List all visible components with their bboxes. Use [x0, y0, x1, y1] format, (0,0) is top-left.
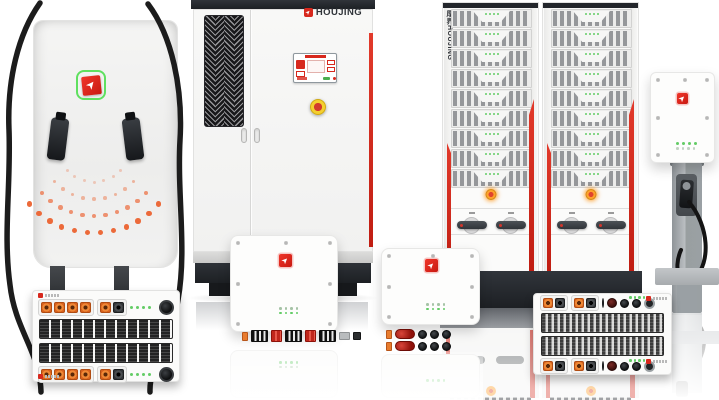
status-led	[634, 296, 637, 299]
indicator-button	[585, 189, 596, 200]
status-led	[285, 312, 288, 315]
module-led	[489, 13, 491, 15]
module-led	[593, 133, 595, 135]
rectifier-module-stack	[32, 290, 180, 382]
status-leds	[130, 373, 151, 376]
status-led	[296, 307, 299, 310]
mini-black-connector	[353, 332, 361, 340]
screw	[236, 322, 240, 326]
rack-module	[451, 49, 532, 68]
module-leds	[485, 13, 499, 22]
screw	[470, 315, 474, 319]
module-led	[597, 13, 599, 15]
module-led	[585, 133, 587, 135]
module-led	[497, 113, 499, 115]
aux-group	[97, 299, 127, 316]
module-led	[493, 73, 495, 75]
module-led	[493, 113, 495, 115]
big-red-connector	[395, 341, 415, 351]
status-led	[290, 312, 293, 315]
module-led	[497, 93, 499, 95]
input-pair	[571, 358, 599, 374]
terminal-connectors	[242, 330, 361, 342]
module-led	[489, 153, 491, 155]
module-led	[485, 13, 487, 15]
module-led	[585, 33, 587, 35]
round-black-connector	[430, 342, 439, 351]
connector-row	[534, 357, 671, 375]
module-led	[593, 173, 595, 175]
module-led	[493, 33, 495, 35]
module-led	[485, 113, 487, 115]
status-led	[634, 359, 637, 362]
status-led	[279, 307, 282, 310]
module-leds	[585, 73, 599, 82]
module-led	[585, 53, 587, 55]
pedestal-lower	[677, 285, 697, 313]
status-led	[136, 306, 139, 309]
screw	[470, 285, 474, 289]
brand-wordmark: ➤ HOUJING	[304, 7, 362, 18]
module-led	[597, 53, 599, 55]
module-led	[585, 173, 587, 175]
output-connector	[159, 300, 174, 315]
status-led	[682, 147, 685, 150]
module-led	[497, 33, 499, 35]
rack-module	[551, 169, 632, 188]
round-black-connector	[418, 330, 427, 339]
module-led	[485, 173, 487, 175]
module-led	[497, 73, 499, 75]
stripe-connector	[319, 330, 336, 342]
module-leds	[485, 33, 499, 42]
module-led	[485, 133, 487, 135]
brand-strip	[38, 374, 59, 379]
module-leds	[485, 113, 499, 122]
indicator-button	[485, 189, 496, 200]
display-dot	[333, 77, 336, 80]
module-led	[589, 33, 591, 35]
rack-top-band	[543, 3, 638, 8]
ventilation-grille	[541, 313, 664, 333]
screw	[431, 254, 435, 258]
status-led	[694, 142, 697, 145]
module-led	[489, 173, 491, 175]
rotary-knob	[602, 298, 604, 308]
rack-module	[451, 169, 532, 188]
brand-logo: ➤	[677, 93, 688, 104]
module-led	[585, 93, 587, 95]
round-black-connector	[620, 299, 629, 308]
screw	[705, 78, 709, 82]
module-led	[593, 33, 595, 35]
round-darkred-connector	[607, 361, 617, 371]
module-led	[497, 13, 499, 15]
module-stack	[551, 9, 632, 188]
plug-row	[386, 329, 451, 339]
status-led	[130, 306, 133, 309]
status-led	[426, 303, 429, 306]
module-led	[493, 93, 495, 95]
screw	[284, 241, 288, 245]
module-leds	[585, 13, 599, 22]
round-black-connector	[442, 342, 451, 351]
module-led	[593, 113, 595, 115]
module-leds	[585, 133, 599, 142]
reflection-fade	[228, 346, 342, 400]
mini-gray-connector	[339, 332, 350, 340]
rack-module	[451, 69, 532, 88]
dc-input-group	[38, 299, 94, 316]
status-led	[437, 303, 440, 306]
module-led	[589, 13, 591, 15]
input-pair	[540, 358, 568, 374]
door-handle	[254, 128, 260, 143]
screw	[387, 315, 391, 319]
black-connector	[586, 298, 596, 308]
red-accent-stripe	[369, 33, 373, 247]
status-led	[130, 373, 133, 376]
rack-module	[451, 29, 532, 48]
screw	[705, 116, 709, 120]
divider	[449, 208, 532, 209]
red-connector	[305, 330, 316, 342]
status-led	[443, 303, 446, 306]
module-leds	[485, 133, 499, 142]
status-led	[676, 147, 679, 150]
round-black-connector	[430, 330, 439, 339]
display-tile	[327, 60, 335, 65]
status-led	[432, 303, 435, 306]
battery-rack-cabinet-1: 厚界HOUJING	[442, 2, 539, 398]
mini-orange-connector	[386, 342, 392, 351]
stripe-connector	[285, 330, 302, 342]
orange-connector	[41, 302, 52, 313]
brand-strip	[646, 296, 667, 301]
status-led	[296, 312, 299, 315]
screw	[328, 241, 332, 245]
screw	[656, 78, 660, 82]
big-red-connector	[395, 329, 415, 339]
module-leds	[485, 153, 499, 162]
module-led	[493, 53, 495, 55]
orange-connector	[80, 302, 91, 313]
dc-breaker-switch	[557, 214, 587, 236]
module-led	[593, 13, 595, 15]
brand-strip	[646, 359, 667, 364]
ventilation-grille	[204, 15, 244, 127]
rack-module	[551, 69, 632, 88]
status-leds	[629, 296, 645, 299]
screw	[683, 78, 687, 82]
status-led	[148, 373, 151, 376]
rack-module	[551, 9, 632, 28]
round-black-connector	[620, 362, 629, 371]
black-connector	[586, 361, 596, 371]
brand-name: HOUJING	[316, 7, 362, 18]
emergency-stop-button	[310, 99, 326, 115]
status-led	[142, 306, 145, 309]
module-led	[585, 73, 587, 75]
module-led	[593, 73, 595, 75]
status-leds	[279, 307, 298, 314]
black-connector	[113, 302, 124, 313]
rack-module	[551, 129, 632, 148]
module-led	[489, 93, 491, 95]
hmi-display	[293, 53, 337, 83]
plug-connectors	[386, 329, 451, 351]
status-leds	[629, 359, 645, 362]
orange-connector	[543, 361, 553, 371]
module-led	[493, 173, 495, 175]
rack-top-band	[443, 3, 538, 8]
output-connector	[159, 367, 174, 382]
ventilation-grille	[39, 343, 173, 363]
orange-connector	[574, 298, 584, 308]
status-led	[432, 308, 435, 311]
module-led	[593, 93, 595, 95]
module-leds	[485, 73, 499, 82]
module-leds	[585, 173, 599, 182]
module-led	[489, 133, 491, 135]
black-connector	[113, 369, 124, 380]
screw	[236, 282, 240, 286]
red-accent-stripe	[629, 99, 634, 271]
mini-orange-connector	[242, 332, 248, 341]
screw	[236, 241, 240, 245]
module-led	[589, 153, 591, 155]
module-leds	[485, 173, 499, 182]
status-led	[443, 308, 446, 311]
black-connector	[555, 298, 565, 308]
module-led	[485, 153, 487, 155]
mini-orange-connector	[386, 330, 392, 339]
orange-connector	[100, 369, 111, 380]
pedestal-arms	[655, 268, 719, 285]
round-darkred-connector	[607, 298, 617, 308]
module-led	[497, 53, 499, 55]
module-led	[493, 133, 495, 135]
module-leds	[485, 93, 499, 102]
rack-module	[451, 149, 532, 168]
round-black-connector	[632, 362, 641, 371]
inverter-panel-1: ➤	[230, 235, 338, 332]
module-stack	[451, 9, 532, 188]
status-led	[687, 147, 690, 150]
rack-module	[451, 9, 532, 28]
module-led	[585, 113, 587, 115]
brand-logo: ➤	[425, 259, 438, 272]
rack-module	[551, 149, 632, 168]
rotary-knob	[602, 361, 604, 371]
rack-module	[451, 89, 532, 108]
orange-connector	[67, 369, 78, 380]
door-seam	[250, 10, 251, 251]
rack-module	[551, 109, 632, 128]
module-led	[489, 53, 491, 55]
status-led	[629, 359, 632, 362]
status-led	[290, 307, 293, 310]
module-leds	[585, 93, 599, 102]
round-black-connector	[632, 299, 641, 308]
orange-connector	[67, 302, 78, 313]
input-pair	[571, 295, 599, 311]
product-showcase: ➤ ➤ HOUJING	[0, 0, 719, 400]
aux-group	[97, 366, 127, 383]
brand-logo: ➤	[279, 254, 292, 267]
screw	[328, 322, 332, 326]
ventilation-grille	[541, 336, 664, 356]
display-header	[305, 55, 326, 58]
module-led	[589, 113, 591, 115]
module-led	[489, 113, 491, 115]
input-pair	[540, 295, 568, 311]
module-leds	[585, 33, 599, 42]
rack-module	[551, 89, 632, 108]
status-led	[638, 296, 641, 299]
status-led	[285, 307, 288, 310]
orange-connector	[100, 302, 111, 313]
module-led	[589, 73, 591, 75]
module-led	[485, 93, 487, 95]
module-led	[497, 173, 499, 175]
red-accent-stripe	[529, 99, 534, 271]
orange-connector	[80, 369, 91, 380]
rack-module	[451, 109, 532, 128]
module-led	[593, 153, 595, 155]
status-led	[693, 147, 696, 150]
status-led	[148, 306, 151, 309]
dc-breaker-switch	[457, 214, 487, 236]
module-led	[493, 153, 495, 155]
wallbox-unit: ➤	[650, 72, 715, 163]
status-led	[682, 142, 685, 145]
rectifier-module-wide	[533, 293, 672, 375]
display-footer	[297, 77, 307, 80]
module-led	[485, 73, 487, 75]
module-led	[597, 153, 599, 155]
red-accent-stripe	[547, 143, 551, 271]
cabinet-body: ➤ HOUJING	[193, 9, 373, 252]
black-connector	[555, 361, 565, 371]
status-led	[142, 373, 145, 376]
orange-connector	[54, 302, 65, 313]
module-led	[589, 53, 591, 55]
status-led	[638, 359, 641, 362]
round-black-connector	[418, 342, 427, 351]
module-led	[485, 33, 487, 35]
rack-module	[451, 129, 532, 148]
module-led	[585, 13, 587, 15]
ac-breaker-switch	[496, 214, 526, 236]
round-black-connector	[442, 330, 451, 339]
status-led	[688, 142, 691, 145]
module-led	[485, 53, 487, 55]
rack-shell	[542, 2, 639, 306]
orange-connector	[543, 298, 553, 308]
module-led	[597, 173, 599, 175]
status-leds	[130, 306, 151, 309]
screw	[387, 285, 391, 289]
status-leds	[676, 142, 697, 150]
module-led	[493, 13, 495, 15]
module-led	[497, 153, 499, 155]
module-led	[589, 93, 591, 95]
connector-row	[534, 294, 671, 312]
display-ok-pill	[323, 77, 330, 80]
module-led	[597, 73, 599, 75]
plug-row	[386, 341, 451, 351]
module-led	[597, 93, 599, 95]
status-led	[437, 308, 440, 311]
status-led	[279, 312, 282, 315]
ventilation-grille	[39, 319, 173, 339]
status-leds	[426, 303, 445, 310]
red-connector	[271, 330, 282, 342]
module-led	[585, 153, 587, 155]
screw	[470, 254, 474, 258]
screw	[656, 153, 660, 157]
display-tile	[327, 67, 335, 72]
stripe-connector	[251, 330, 268, 342]
screw	[656, 116, 660, 120]
screw	[387, 254, 391, 258]
rack-module	[551, 29, 632, 48]
module-leds	[585, 113, 599, 122]
screw	[328, 282, 332, 286]
orange-connector	[574, 361, 584, 371]
module-led	[597, 113, 599, 115]
door-handle	[241, 128, 247, 143]
module-led	[589, 173, 591, 175]
divider	[549, 208, 632, 209]
ac-breaker-switch	[596, 214, 626, 236]
module-led	[489, 73, 491, 75]
inverter-panel-2: ➤	[381, 248, 480, 325]
screw	[705, 153, 709, 157]
module-led	[597, 33, 599, 35]
connector-row	[33, 297, 179, 318]
rack-module	[551, 49, 632, 68]
module-led	[593, 53, 595, 55]
module-leds	[485, 53, 499, 62]
brand-logo-icon: ➤	[304, 8, 313, 17]
reflection-fade	[379, 352, 483, 400]
module-led	[497, 133, 499, 135]
module-led	[489, 33, 491, 35]
status-led	[629, 296, 632, 299]
module-led	[597, 133, 599, 135]
status-led	[676, 142, 679, 145]
status-led	[136, 373, 139, 376]
module-leds	[585, 153, 599, 162]
module-led	[589, 133, 591, 135]
status-led	[643, 359, 646, 362]
display-chart	[307, 60, 325, 73]
display-logo	[296, 60, 305, 69]
status-led	[426, 308, 429, 311]
module-leds	[585, 53, 599, 62]
status-led	[643, 296, 646, 299]
